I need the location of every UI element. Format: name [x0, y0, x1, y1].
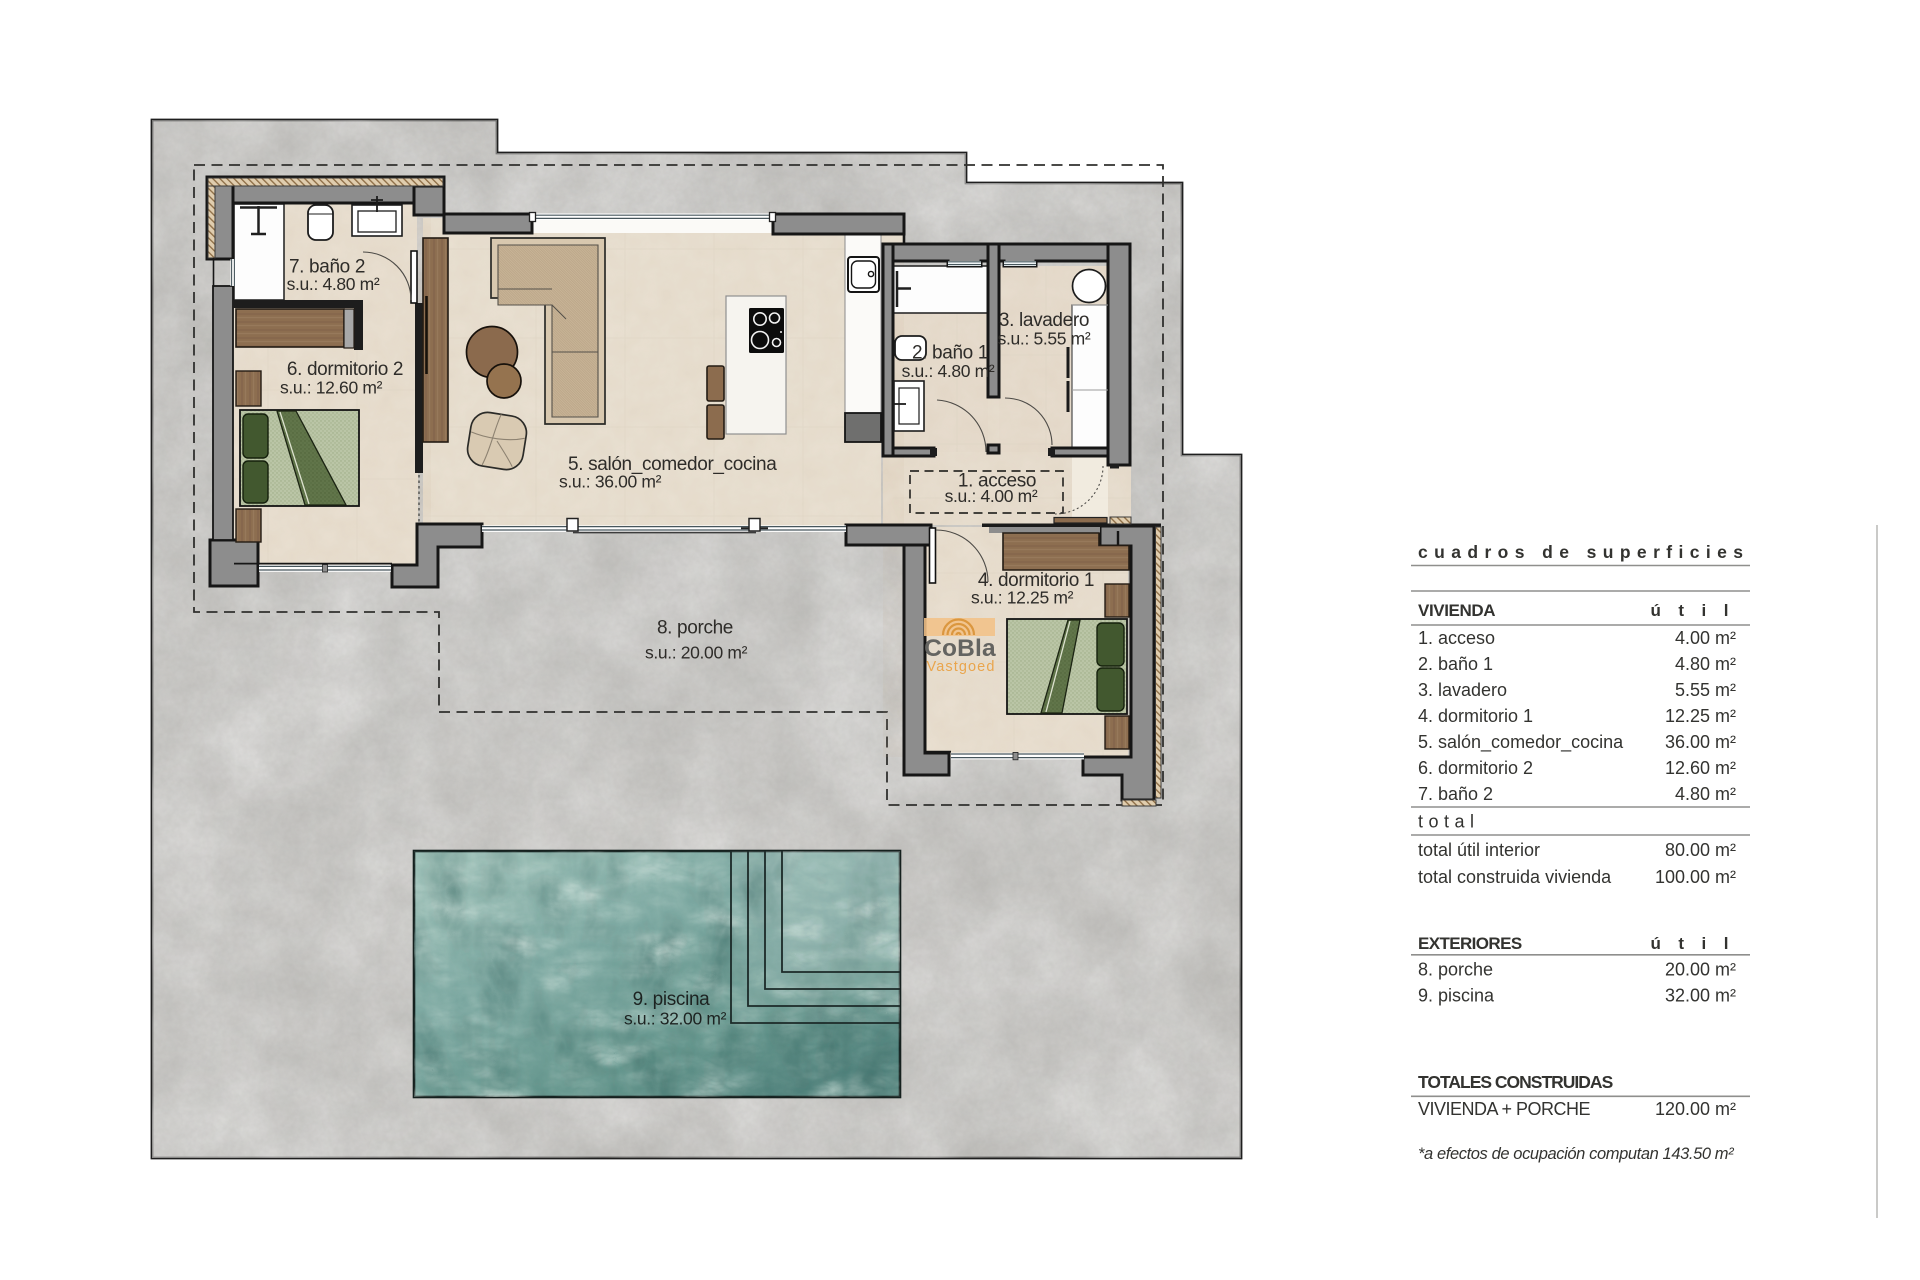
svg-text:7. baño 2: 7. baño 2	[1418, 784, 1493, 804]
svg-text:120.00 m²: 120.00 m²	[1655, 1099, 1736, 1119]
svg-text:cuadros de superficies: cuadros de superficies	[1418, 542, 1749, 562]
svg-text:2. baño 1: 2. baño 1	[1418, 654, 1493, 674]
svg-text:80.00 m²: 80.00 m²	[1665, 840, 1736, 860]
svg-text:9. piscina: 9. piscina	[633, 989, 711, 1010]
svg-text:4. dormitorio 1: 4. dormitorio 1	[1418, 706, 1533, 726]
svg-text:4.00 m²: 4.00 m²	[1675, 628, 1736, 648]
svg-text:1. acceso: 1. acceso	[1418, 628, 1495, 648]
svg-text:s.u.: 20.00 m²: s.u.: 20.00 m²	[645, 643, 748, 663]
svg-text:total construida vivienda: total construida vivienda	[1418, 867, 1612, 887]
svg-text:s.u.: 12.60 m²: s.u.: 12.60 m²	[280, 378, 383, 398]
svg-text:s.u.: 32.00 m²: s.u.: 32.00 m²	[624, 1009, 727, 1029]
svg-text:6. dormitorio 2: 6. dormitorio 2	[1418, 758, 1533, 778]
svg-text:total: total	[1418, 812, 1480, 832]
svg-text:s.u.: 12.25 m²: s.u.: 12.25 m²	[971, 588, 1074, 608]
svg-text:total útil interior: total útil interior	[1418, 840, 1540, 860]
svg-text:100.00 m²: 100.00 m²	[1655, 867, 1736, 887]
svg-text:5. salón_comedor_cocina: 5. salón_comedor_cocina	[1418, 732, 1624, 753]
svg-text:s.u.: 4.00 m²: s.u.: 4.00 m²	[945, 486, 1038, 506]
svg-text:3. lavadero: 3. lavadero	[1418, 680, 1507, 700]
svg-text:EXTERIORES: EXTERIORES	[1418, 934, 1522, 953]
svg-text:20.00 m²: 20.00 m²	[1665, 960, 1736, 980]
svg-text:9. piscina: 9. piscina	[1418, 986, 1495, 1006]
svg-text:TOTALES CONSTRUIDAS: TOTALES CONSTRUIDAS	[1418, 1072, 1613, 1092]
svg-text:Vastgoed: Vastgoed	[927, 659, 996, 675]
svg-text:VIVIENDA: VIVIENDA	[1418, 601, 1495, 620]
svg-text:8. porche: 8. porche	[1418, 960, 1493, 980]
svg-text:s.u.: 5.55 m²: s.u.: 5.55 m²	[998, 329, 1091, 349]
svg-text:36.00 m²: 36.00 m²	[1665, 732, 1736, 752]
svg-text:5.55 m²: 5.55 m²	[1675, 680, 1736, 700]
svg-text:útil: útil	[1651, 601, 1747, 620]
svg-text:s.u.: 36.00 m²: s.u.: 36.00 m²	[559, 472, 662, 492]
svg-text:32.00 m²: 32.00 m²	[1665, 986, 1736, 1006]
svg-text:4.80 m²: 4.80 m²	[1675, 654, 1736, 674]
svg-text:s.u.: 4.80 m²: s.u.: 4.80 m²	[902, 361, 995, 381]
svg-text:útil: útil	[1651, 934, 1747, 953]
svg-text:VIVIENDA + PORCHE: VIVIENDA + PORCHE	[1418, 1099, 1591, 1119]
svg-text:12.60 m²: 12.60 m²	[1665, 758, 1736, 778]
svg-text:4.80 m²: 4.80 m²	[1675, 784, 1736, 804]
svg-text:CoBla: CoBla	[924, 635, 996, 662]
svg-text:s.u.: 4.80 m²: s.u.: 4.80 m²	[287, 274, 380, 294]
svg-text:*a efectos de ocupación comput: *a efectos de ocupación computan 143.50 …	[1418, 1145, 1734, 1163]
svg-text:8. porche: 8. porche	[657, 618, 733, 639]
svg-text:12.25 m²: 12.25 m²	[1665, 706, 1736, 726]
